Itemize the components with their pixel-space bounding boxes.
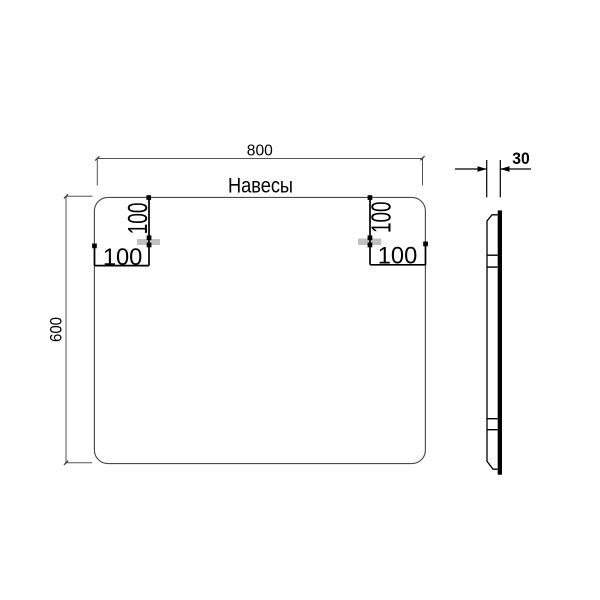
svg-text:100: 100 [103, 245, 143, 271]
svg-text:600: 600 [47, 317, 66, 342]
svg-text:Навесы: Навесы [228, 174, 293, 198]
svg-text:100: 100 [122, 202, 153, 234]
svg-text:100: 100 [366, 201, 397, 233]
svg-text:800: 800 [247, 143, 273, 160]
svg-text:100: 100 [378, 243, 418, 269]
svg-text:30: 30 [512, 150, 530, 168]
